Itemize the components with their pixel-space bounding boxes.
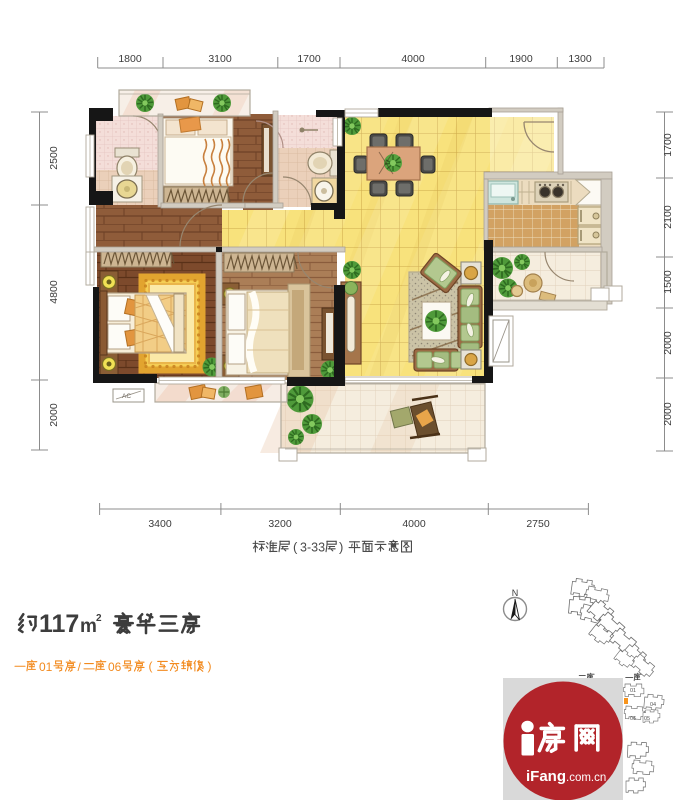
- svg-text:3100: 3100: [208, 53, 232, 65]
- svg-text:05: 05: [644, 716, 650, 722]
- svg-text:3200: 3200: [268, 518, 292, 530]
- svg-text:06: 06: [108, 660, 122, 674]
- svg-text:2000: 2000: [48, 403, 60, 427]
- svg-text:AC: AC: [122, 393, 131, 400]
- svg-text:2000: 2000: [662, 331, 674, 355]
- svg-text:1300: 1300: [568, 53, 592, 65]
- svg-text:3400: 3400: [148, 518, 172, 530]
- svg-text:2000: 2000: [662, 402, 674, 426]
- svg-text:1700: 1700: [662, 133, 674, 157]
- svg-text:2750: 2750: [526, 518, 550, 530]
- svg-text:(: (: [149, 659, 153, 673]
- svg-text:01: 01: [39, 660, 53, 674]
- svg-text:4800: 4800: [48, 280, 60, 304]
- svg-text:117: 117: [39, 610, 79, 638]
- svg-text:2100: 2100: [662, 205, 674, 229]
- svg-text:1900: 1900: [509, 53, 533, 65]
- svg-text:01: 01: [630, 688, 636, 694]
- svg-text:.com.cn: .com.cn: [566, 772, 606, 784]
- svg-text:06: 06: [630, 716, 636, 722]
- svg-text:N: N: [512, 588, 519, 598]
- svg-text:04: 04: [650, 702, 656, 708]
- svg-text:(: (: [293, 540, 298, 555]
- svg-text:iFang: iFang: [526, 768, 566, 785]
- svg-text:): ): [208, 659, 212, 673]
- svg-text:m: m: [80, 616, 97, 637]
- svg-text:1500: 1500: [662, 270, 674, 294]
- svg-text:1800: 1800: [118, 53, 142, 65]
- svg-text:2500: 2500: [48, 146, 60, 170]
- svg-text:4000: 4000: [402, 518, 426, 530]
- svg-text:1700: 1700: [297, 53, 321, 65]
- svg-text:3-33: 3-33: [300, 541, 325, 555]
- svg-text:): ): [339, 540, 343, 555]
- svg-text:2: 2: [96, 613, 102, 624]
- svg-text:4000: 4000: [401, 53, 425, 65]
